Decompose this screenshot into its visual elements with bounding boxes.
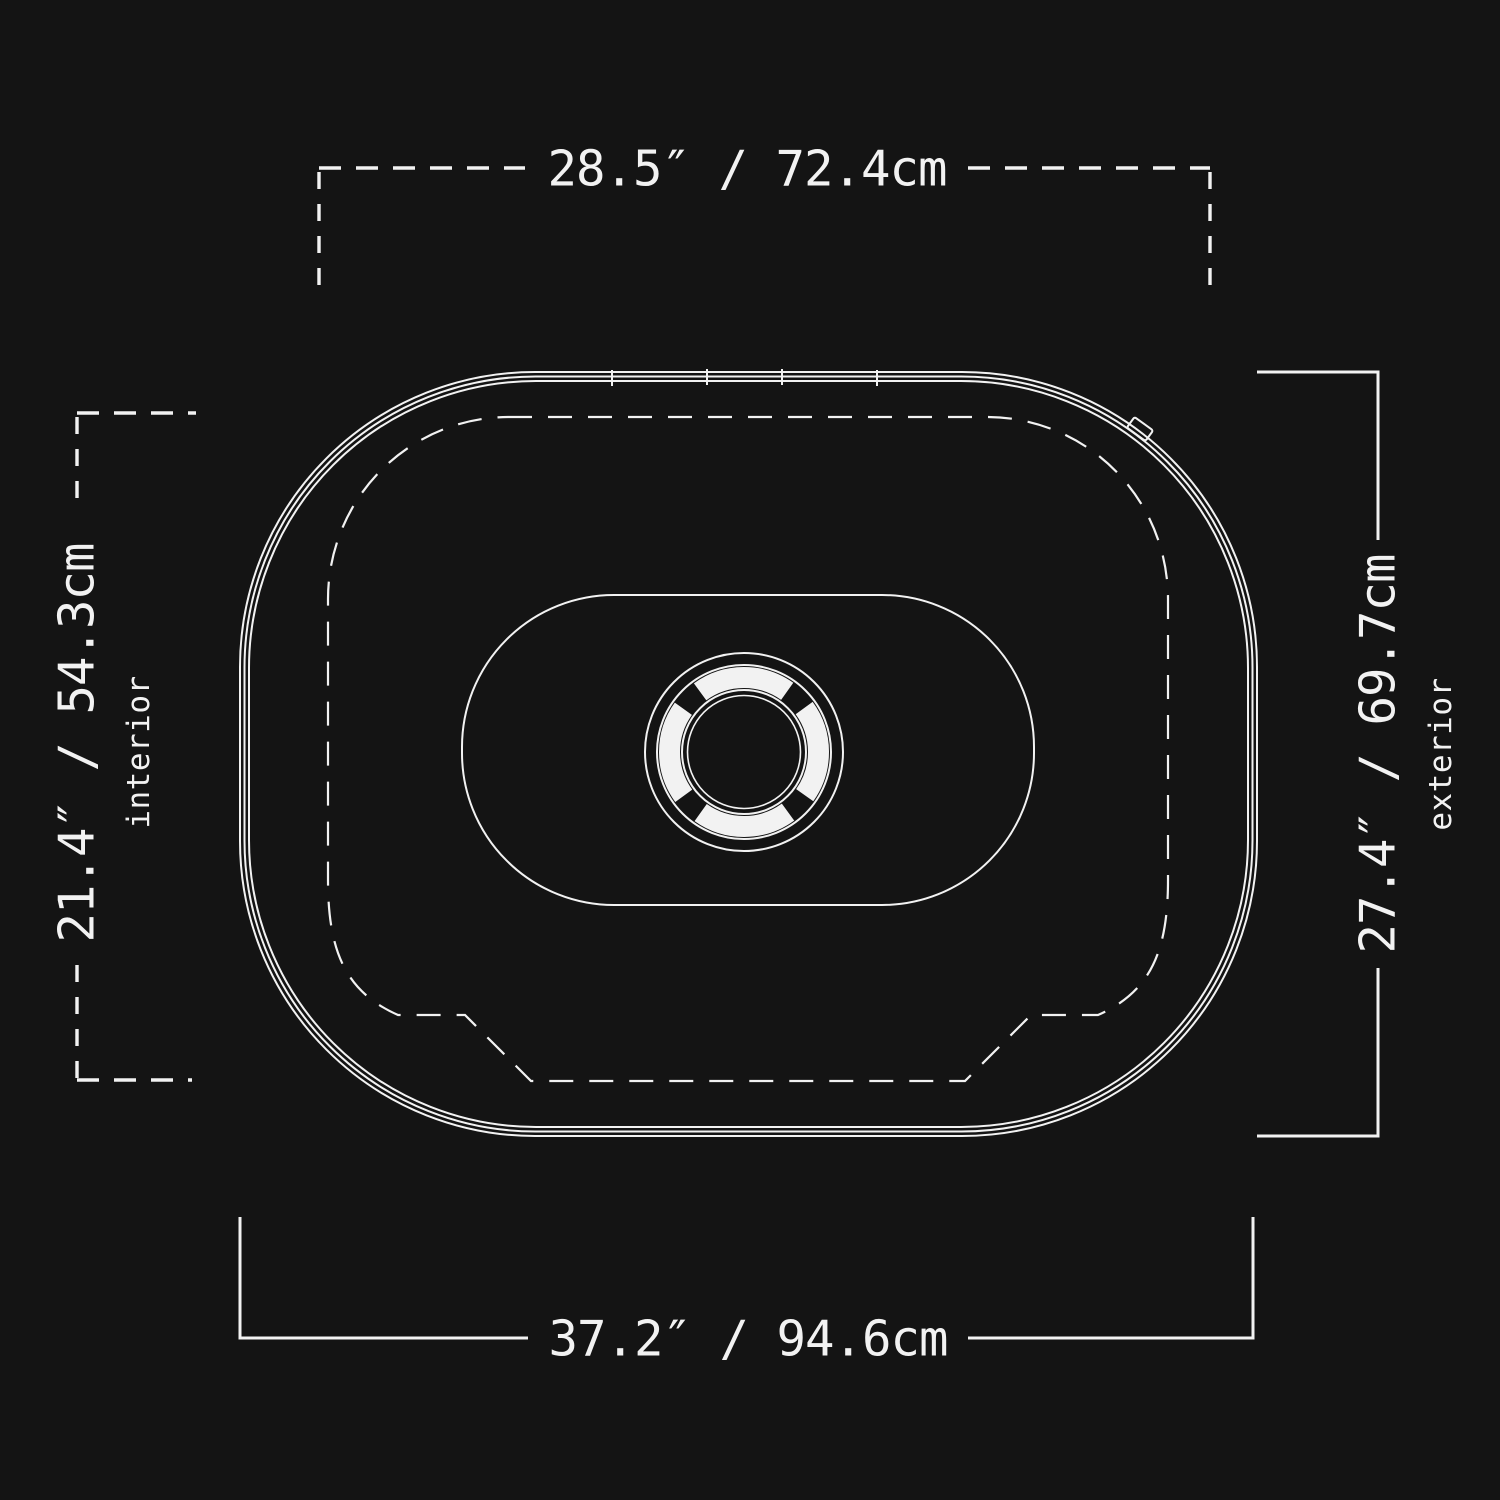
diagram-canvas: 28.5″ / 72.4cm 21.4″ / 54.3cm interior 2… <box>0 0 1500 1500</box>
dimension-diagram: 28.5″ / 72.4cm 21.4″ / 54.3cm interior 2… <box>0 0 1500 1500</box>
bottom-dimension-value: 37.2″ / 94.6cm <box>548 1311 947 1368</box>
top-dimension-value: 28.5″ / 72.4cm <box>547 141 946 198</box>
background <box>0 0 1500 1500</box>
left-dimension-value: 21.4″ / 54.3cm <box>49 543 106 942</box>
right-dimension-value: 27.4″ / 69.7cm <box>1350 554 1407 953</box>
exterior-label: exterior <box>1423 677 1459 830</box>
interior-label: interior <box>121 675 157 828</box>
